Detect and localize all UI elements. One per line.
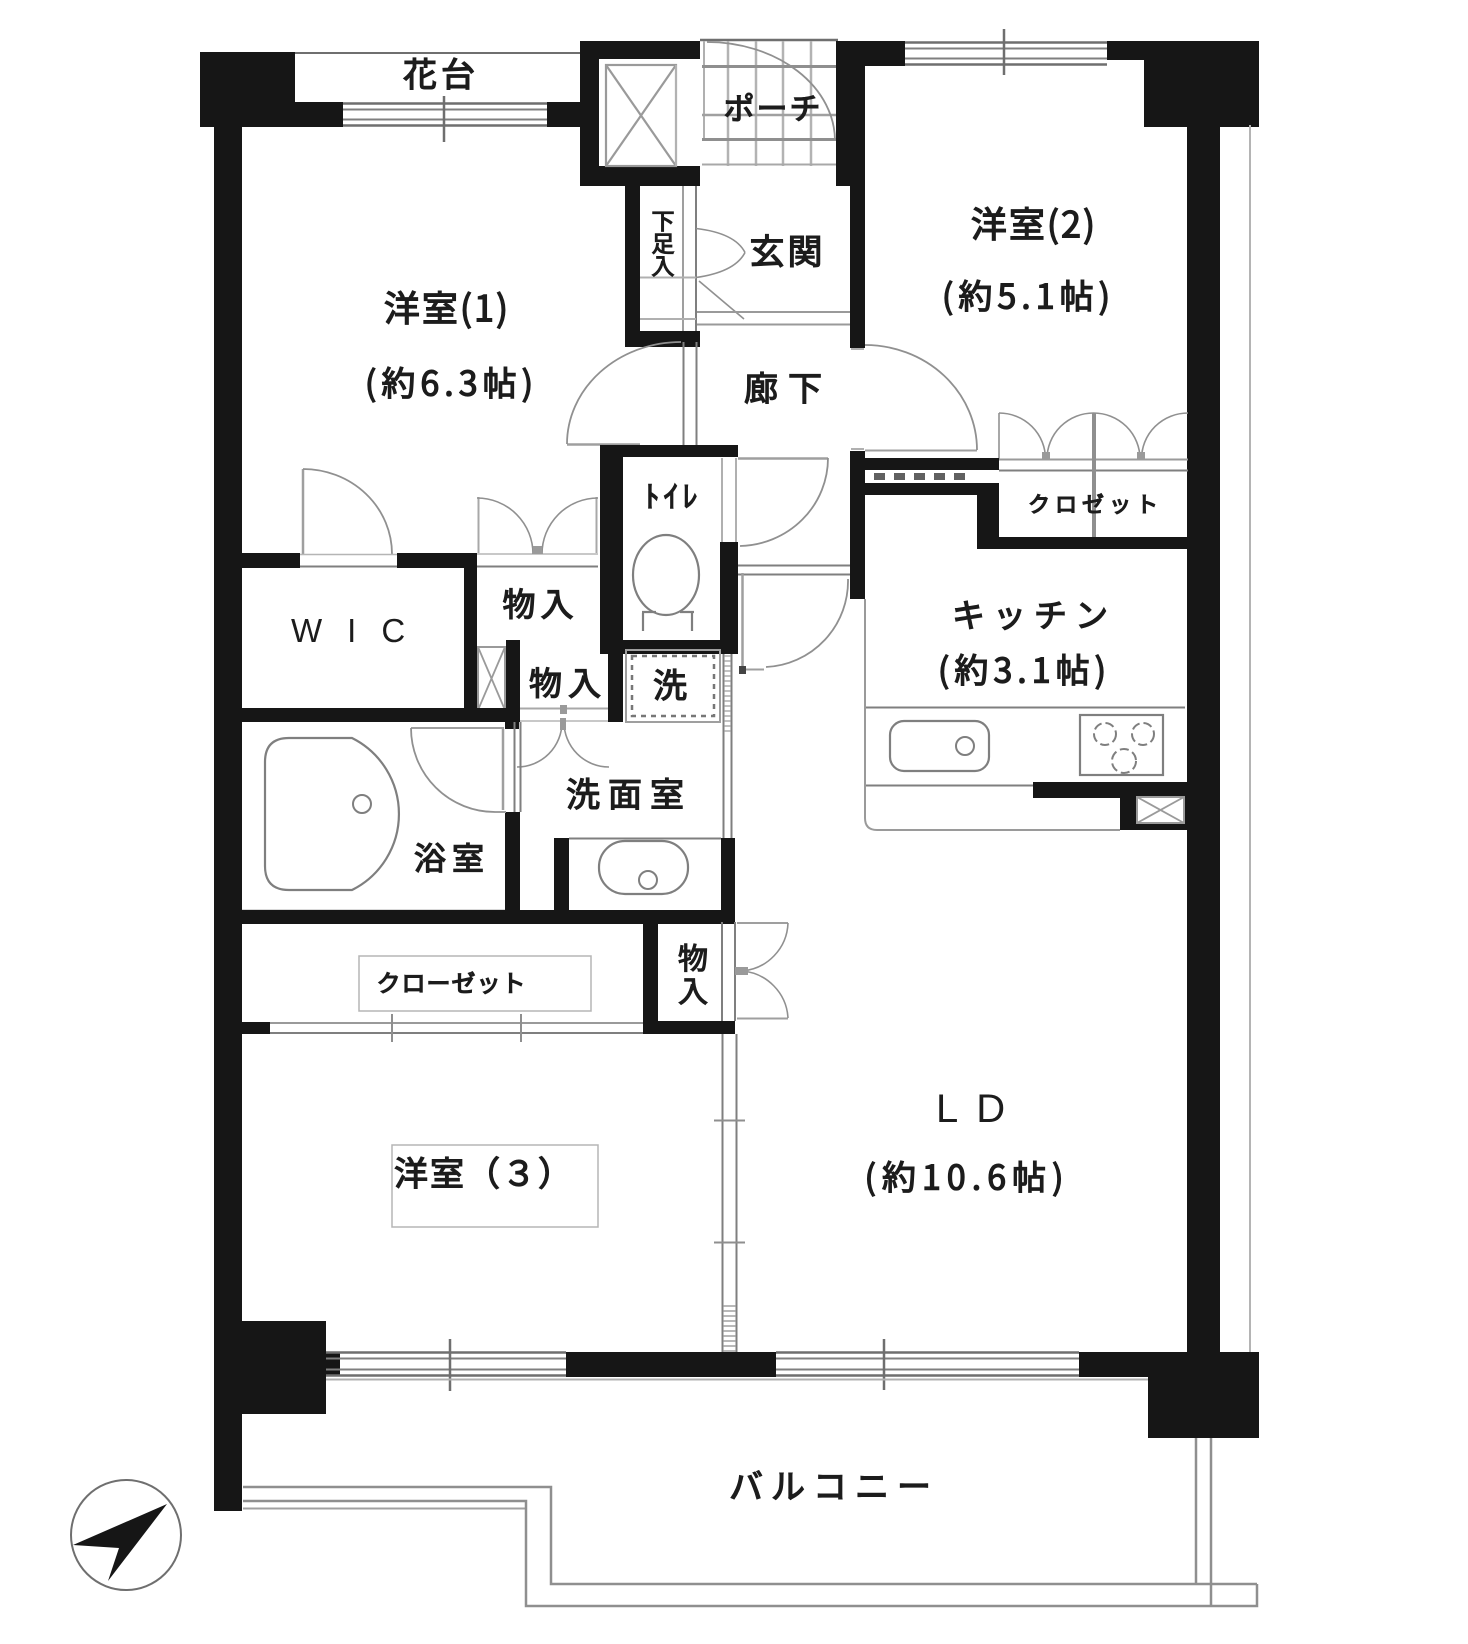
- svg-text:LD: LD: [936, 1087, 1023, 1131]
- svg-text:WIC: WIC: [291, 612, 430, 649]
